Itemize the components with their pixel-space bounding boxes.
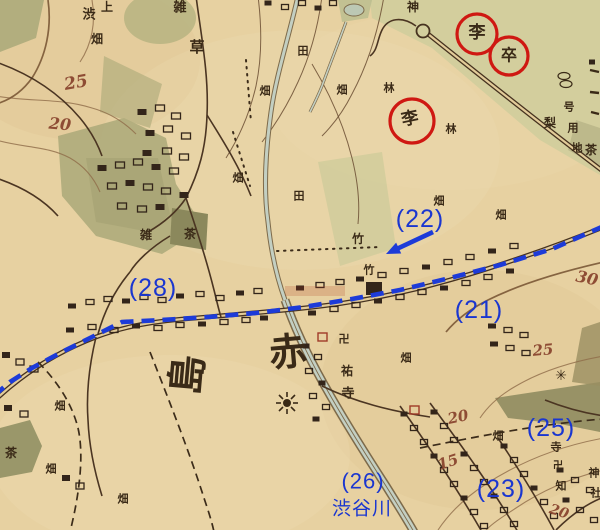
map-kanji-label: 社 xyxy=(590,486,600,500)
map-kanji-label: 号 xyxy=(564,101,575,114)
building xyxy=(374,299,382,304)
map-kanji-label: 雑 xyxy=(139,227,152,242)
contour-number: 25 xyxy=(62,71,90,95)
building xyxy=(461,496,468,501)
building xyxy=(401,412,408,417)
circled-kanji: 卒 xyxy=(501,46,517,65)
map-canvas: 上渋畑雑草神田畑畑林林梨茶畑田竹竹雑茶畑畑赤島卍祐寺畑畑畑畑畑茶✳号用地寺卍知神… xyxy=(0,0,600,530)
map-kanji-label: 畑 xyxy=(118,493,129,506)
building xyxy=(152,164,161,170)
map-kanji-label: 梨 xyxy=(543,115,556,130)
building xyxy=(143,150,152,156)
map-kanji-label: 草 xyxy=(189,38,204,56)
building xyxy=(490,342,498,347)
building xyxy=(68,304,76,309)
map-kanji-label: 祐 xyxy=(341,363,353,378)
map-kanji-label: 地 xyxy=(572,141,583,155)
blue-annotation-label: (23) xyxy=(477,475,525,503)
map-kanji-label: 畑 xyxy=(55,400,66,413)
building xyxy=(313,417,320,422)
map-kanji-label: 茶 xyxy=(4,445,18,460)
building xyxy=(488,324,496,329)
map-kanji-label: 林 xyxy=(384,81,395,95)
map-kanji-label: 畑 xyxy=(401,352,412,365)
map-kanji-label: 畑 xyxy=(46,463,57,476)
map-kanji-label: 渋 xyxy=(82,7,95,23)
blue-annotation-label: (26) xyxy=(341,469,384,494)
map-kanji-label: 畑 xyxy=(493,430,504,443)
map-kanji-label: 畑 xyxy=(91,32,103,46)
shrine-symbol xyxy=(276,392,298,414)
contour-number: 25 xyxy=(531,340,554,360)
contour-number: 20 xyxy=(47,113,72,134)
building xyxy=(132,324,140,329)
building xyxy=(66,328,74,333)
building xyxy=(422,265,430,270)
building xyxy=(126,180,135,186)
blue-annotation-label: (22) xyxy=(396,205,444,233)
building xyxy=(236,291,244,296)
building xyxy=(488,249,496,254)
map-kanji-label: 畑 xyxy=(233,172,244,185)
building xyxy=(4,405,12,411)
building xyxy=(2,352,10,358)
map-kanji-label: 神 xyxy=(407,0,419,14)
map-kanji-label: 林 xyxy=(446,122,457,136)
building xyxy=(198,322,206,327)
building xyxy=(431,410,438,415)
building xyxy=(98,165,107,171)
building xyxy=(461,452,468,457)
map-kanji-label: 田 xyxy=(298,45,309,58)
building xyxy=(356,277,364,282)
map-kanji-label: 卍 xyxy=(553,460,563,472)
building xyxy=(308,311,316,316)
building xyxy=(531,486,538,491)
map-kanji-label: 上 xyxy=(101,0,113,14)
building xyxy=(319,381,326,386)
map-kanji-label: 雑 xyxy=(172,0,186,16)
blue-annotation-label: 渋谷川 xyxy=(332,498,392,520)
blue-annotation-label: (25) xyxy=(527,414,575,442)
blue-annotation-label: (21) xyxy=(455,296,503,324)
building xyxy=(146,130,155,136)
map-kanji-label: 畑 xyxy=(496,209,507,222)
map-kanji-label: 茶 xyxy=(183,226,197,241)
map-kanji-label: 卍 xyxy=(339,333,350,346)
building xyxy=(180,192,189,198)
map-kanji-label: 畑 xyxy=(337,84,348,97)
map-viewport: 上渋畑雑草神田畑畑林林梨茶畑田竹竹雑茶畑畑赤島卍祐寺畑畑畑畑畑茶✳号用地寺卍知神… xyxy=(0,0,600,530)
map-kanji-label: 茶 xyxy=(584,142,598,157)
building xyxy=(440,286,448,291)
map-kanji-label: 竹 xyxy=(351,231,364,246)
map-kanji-label: 寺 xyxy=(341,386,354,402)
map-kanji-label: 知 xyxy=(555,479,567,493)
building xyxy=(62,475,70,481)
building xyxy=(156,204,165,210)
map-kanji-label: 竹 xyxy=(363,263,375,277)
building xyxy=(138,109,147,115)
building xyxy=(315,6,322,11)
map-kanji-label: 赤 xyxy=(267,328,309,375)
circled-kanji: 李 xyxy=(469,22,486,43)
map-kanji-label: 神 xyxy=(589,466,600,480)
building xyxy=(265,1,272,6)
building xyxy=(260,316,268,321)
map-kanji-label: ✳ xyxy=(555,368,567,384)
map-kanji-label: 用 xyxy=(568,122,579,135)
building xyxy=(563,498,570,503)
map-kanji-label: 田 xyxy=(294,190,305,203)
blue-annotation-label: (28) xyxy=(129,274,177,302)
map-kanji-label: 畑 xyxy=(260,85,271,98)
building xyxy=(589,60,595,65)
building xyxy=(501,444,508,449)
map-kanji-label: 島 xyxy=(163,353,212,397)
building xyxy=(506,269,514,274)
